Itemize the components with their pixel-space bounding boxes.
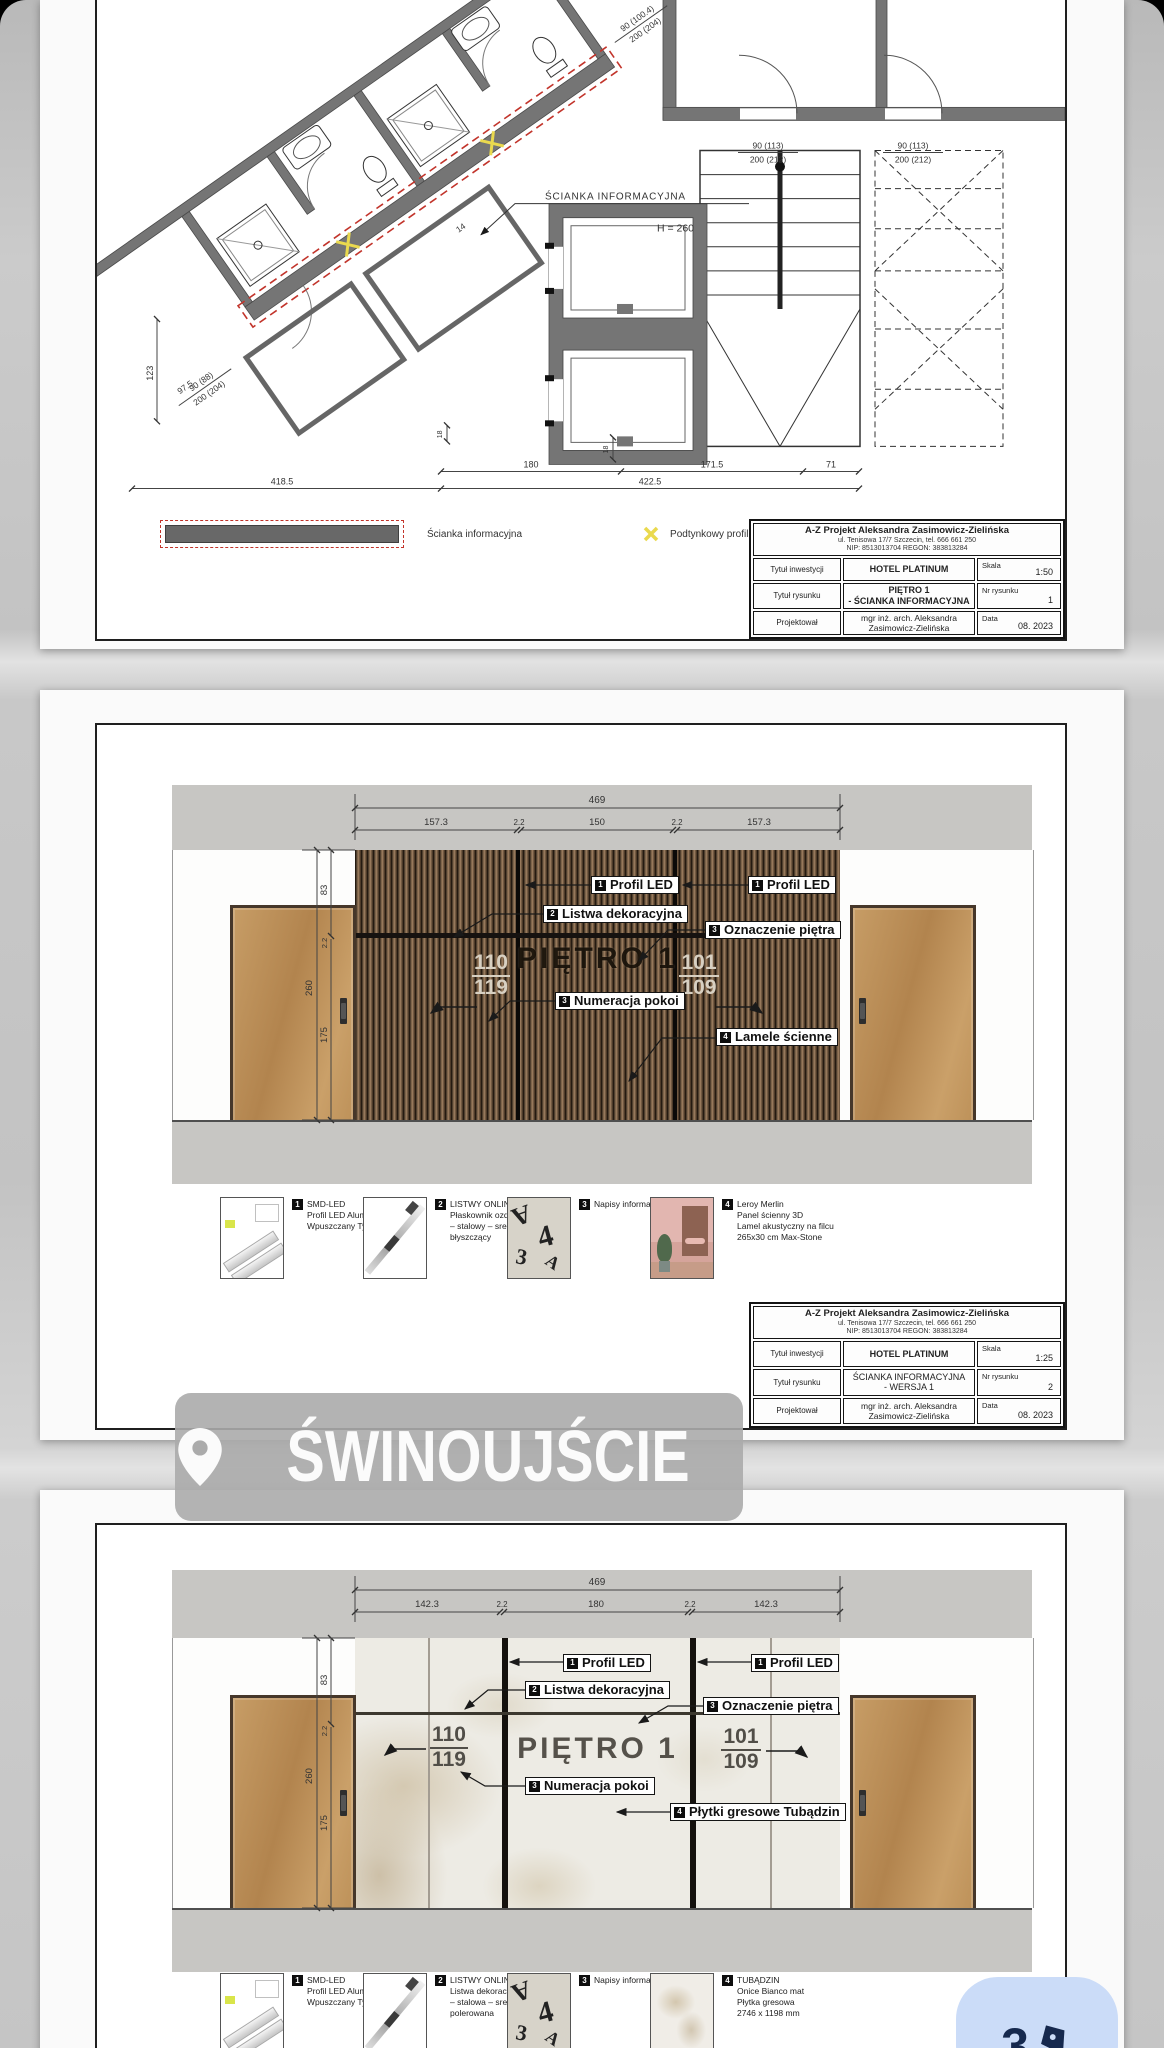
led-x-icon [642,525,660,543]
door-handle [341,1003,346,1019]
room-range-right: 101 109 [718,1726,764,1773]
room-door-left [230,905,356,1126]
door-handle [341,1795,346,1811]
floor-sign-text: PIĘTRO 1 [495,942,700,976]
elevator-shafts [545,204,707,465]
svg-text:90 (88): 90 (88) [187,370,215,394]
stairwell [700,150,1003,446]
corridor-walls [663,0,1065,120]
callout-lamele: 4Lamele ścienne [716,1028,838,1046]
floor-sign-text: PIĘTRO 1 [495,1732,700,1766]
svg-text:200 (204): 200 (204) [191,378,227,407]
callout-numeracja: 3Numeracja pokoi [555,992,685,1010]
diag-door-label-b: 90 (100.4) 200 (204) [608,0,674,52]
bathroom-fixtures [196,0,567,288]
callout-listwa: 2Listwa dekoracyjna [525,1681,670,1699]
callout-listwa: 2Listwa dekoracyjna [543,905,688,923]
door-openings [739,55,942,119]
marble-panel [355,1638,840,1908]
location-sticker[interactable]: ŚWINOUJŚCIE [175,1393,743,1521]
room-door-left [230,1695,356,1914]
drawing-sheet-plan: 97.5 14 90 (88) 200 (204) 90 (100.4) 200… [40,0,1124,649]
svg-text:90 (100.4): 90 (100.4) [618,3,656,34]
callout-oznaczenie: 3Oznaczenie piętra [703,1697,839,1715]
dim-418-5: 418.5 [271,477,293,487]
floor-band [172,1908,1032,1972]
location-sticker-label: ŚWINOUJŚCIE [286,1416,689,1498]
dim-14: 14 [454,221,468,235]
dim-97-5: 97.5 [175,378,194,396]
diag-door-label-a: 90 (88) 200 (204) [172,359,238,416]
plan-frame: 97.5 14 90 (88) 200 (204) 90 (100.4) 200… [95,0,1067,641]
plan-legend: Ścianka informacyjna Podtynkowy profil L… [165,525,771,543]
letters-photo: A 4 3 A [507,1197,571,1279]
callout-oznaczenie: 3Oznaczenie piętra [705,921,841,939]
lower-rooms [246,187,541,433]
stair-door-label-a: 90 (113) 200 (212) [738,140,798,164]
wall-height-label: H = 260 [657,223,694,235]
company-name: A-Z Projekt Aleksandra Zasimowicz-Zieliń… [758,1309,1056,1320]
callout-profil-led-2: 1Profil LED [751,1654,839,1672]
info-wall-label: ŚCIANKA INFORMACYJNA [545,190,686,203]
room-door-right [850,1695,976,1914]
dim-171-5: 171.5 [701,459,723,469]
door-handle [860,1795,865,1811]
ceiling-band [172,1570,1032,1640]
info-wall-red-dashed [238,47,622,327]
dimension-lines [132,319,859,489]
company-address: ul. Tenisowa 17/7 Szczecin, tel. 666 661… [758,537,1056,545]
location-pin-icon [178,1428,222,1486]
callout-profil-led-2: 1Profil LED [748,876,836,894]
dim-422-5: 422.5 [639,477,661,487]
stair-door-label-b: 90 (113) 200 (212) [883,140,943,164]
drawing-sheet-elevation-v2: PIĘTRO 1 110 119 101 109 [40,1490,1124,2048]
dim-18b: 18 [437,430,444,438]
svg-text:200 (204): 200 (204) [627,15,663,44]
bathroom-block: 97.5 14 [97,0,686,551]
dim-123: 123 [145,366,155,381]
dim-180: 180 [523,459,538,469]
led-profile-photo [220,1973,284,2048]
info-wall-swatch [165,525,399,543]
material-item-gres: 4 TUBĄDZINOnice Bianco matPłytka gresowa… [650,1973,855,2048]
marble-tile-photo [650,1973,714,2048]
led-x-marks [336,131,504,256]
svg-text:90 (113): 90 (113) [898,140,929,150]
note-sticker-text: 3 [1001,2021,1029,2048]
dim-18a: 18 [603,445,610,453]
door-arcs [211,30,580,348]
callout-profil-led-1: 1Profil LED [563,1654,651,1672]
callout-numeracja: 3Numeracja pokoi [525,1777,655,1795]
story-viewport: 97.5 14 90 (88) 200 (204) 90 (100.4) 200… [0,0,1164,2048]
room-range-left: 110 119 [426,1724,472,1771]
titleblock-sheet2: A-Z Projekt Aleksandra Zasimowicz-Zieliń… [749,1302,1065,1428]
ceiling-band [172,785,1032,852]
company-ids: NIP: 8513013704 REGON: 383813284 [758,545,1056,553]
floor-band [172,1120,1032,1184]
drawing-sheet-elevation-v1: PIĘTRO 1 110 119 101 109 [40,690,1124,1440]
legend-wall-label: Ścianka informacyjna [427,529,522,540]
svg-text:200 (212): 200 (212) [895,155,931,165]
room-door-right [850,905,976,1126]
material-item-panel: 4 Leroy MerlinPanel ścienny 3DLamel akus… [650,1197,855,1279]
callout-plytki: 4Płytki gresowe Tubądzin [670,1803,846,1821]
titleblock-sheet1: A-Z Projekt Aleksandra Zasimowicz-Zieliń… [749,519,1065,639]
metal-strip-photo [363,1197,427,1279]
room-range-left: 110 119 [468,952,514,999]
company-name: A-Z Projekt Aleksandra Zasimowicz-Zieliń… [758,526,1056,537]
wall-panel-photo [650,1197,714,1279]
svg-text:200 (212): 200 (212) [750,155,786,165]
led-profile-photo [220,1197,284,1279]
letters-photo: A 4 3 A [507,1973,571,2048]
door-handle [860,1003,865,1019]
svg-text:90 (113): 90 (113) [753,140,784,150]
metal-strip-photo [363,1973,427,2048]
pen-icon [1030,2016,1079,2048]
note-sticker[interactable]: 3 [956,1977,1118,2048]
callout-profil-led-1: 1Profil LED [591,876,679,894]
dim-71: 71 [826,459,836,469]
